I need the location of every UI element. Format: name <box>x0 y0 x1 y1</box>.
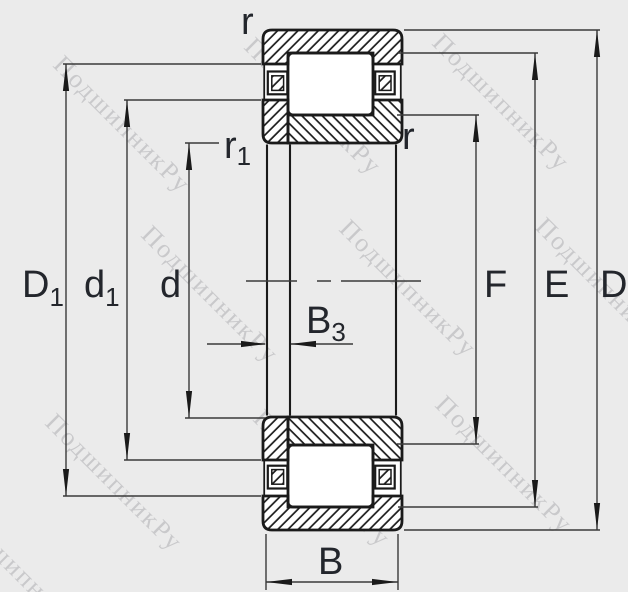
loose-flange-washer-top <box>263 100 288 143</box>
label-d1-sub: 1 <box>105 282 119 312</box>
label-D-base: D <box>600 264 627 306</box>
label-D: D <box>600 264 627 306</box>
label-r1-base: r <box>224 125 237 167</box>
watermark-text: ПодшипникРу <box>334 214 483 363</box>
bearing-section-bottom <box>263 417 402 530</box>
label-r-inner-base: r <box>402 116 415 158</box>
label-r1-sub: 1 <box>237 141 251 171</box>
label-r1: r1 <box>224 125 251 171</box>
label-F: F <box>484 264 507 306</box>
watermark-text: ПодшипникРу <box>136 220 285 369</box>
bearing-diagram: ПодшипникРу ПодшипникРу ПодшипникРу Подш… <box>0 0 628 592</box>
cage-bottom-left-section <box>272 470 284 485</box>
label-D1-base: D <box>22 264 49 306</box>
label-d1-base: d <box>84 264 105 306</box>
bearing-section-top <box>263 30 402 143</box>
loose-flange-washer-bottom <box>263 417 288 460</box>
label-d: d <box>160 264 181 306</box>
watermark-text: ПодшипникРу <box>40 408 189 557</box>
label-B: B <box>318 541 343 583</box>
label-B3-base: B <box>306 300 331 342</box>
label-d-base: d <box>160 264 181 306</box>
watermark-text: ПодшипникРу <box>0 500 97 592</box>
label-B-base: B <box>318 541 343 583</box>
label-r-inner: r <box>402 116 415 158</box>
label-d1: d1 <box>84 264 120 312</box>
watermark-text: ПодшипникРу <box>48 50 197 199</box>
label-r-outer: r <box>241 1 254 43</box>
cage-top-left-section <box>272 76 284 91</box>
cage-top-right-section <box>379 76 391 91</box>
cage-bottom-right-section <box>379 470 391 485</box>
watermark-text: ПодшипникРу <box>427 28 576 177</box>
label-D1-sub: 1 <box>49 282 63 312</box>
label-B3: B3 <box>306 300 346 347</box>
label-E: E <box>544 264 569 306</box>
label-B3-sub: 3 <box>331 317 345 347</box>
bearing-drawing-canvas: ПодшипникРу ПодшипникРу ПодшипникРу Подш… <box>0 0 628 592</box>
label-F-base: F <box>484 264 507 306</box>
label-r-outer-base: r <box>241 1 254 43</box>
watermark-text: ПодшипникРу <box>430 390 579 539</box>
label-D1: D1 <box>22 264 64 312</box>
bore-edge-lines <box>267 145 396 416</box>
label-E-base: E <box>544 264 569 306</box>
